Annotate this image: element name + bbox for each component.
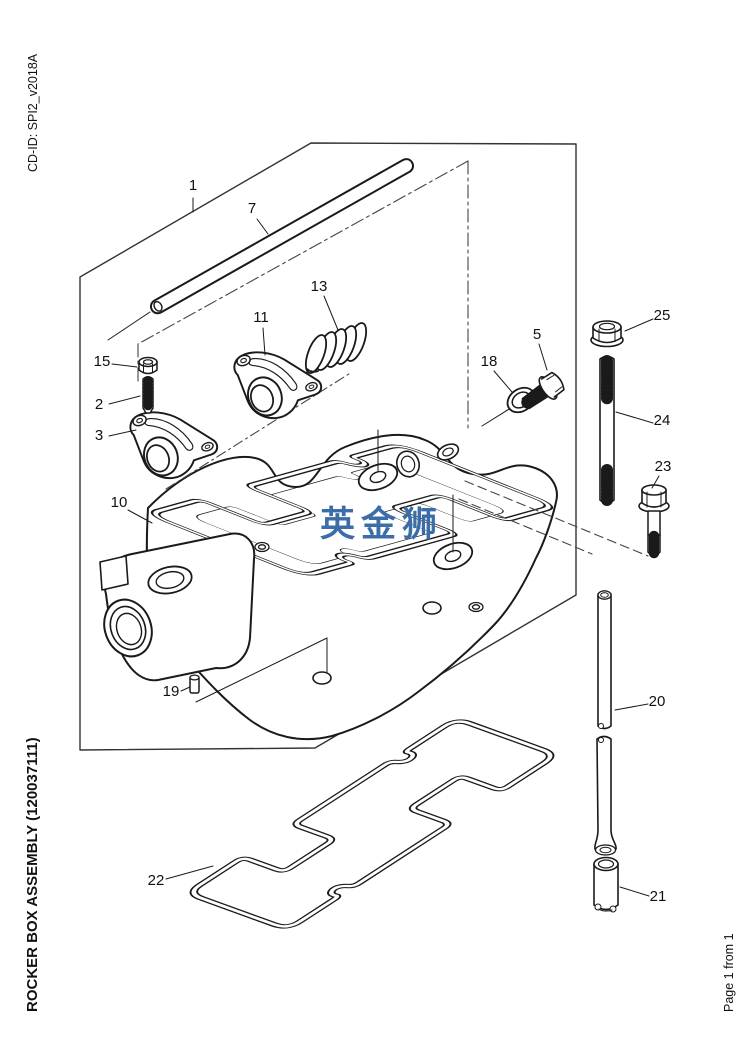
- callout-24: 24: [654, 412, 671, 429]
- watermark: 英金狮: [320, 504, 443, 544]
- page: CD-ID: SPI2_v2018A ROCKER BOX ASSEMBLY (…: [0, 0, 750, 1044]
- callout-13: 13: [311, 278, 328, 295]
- callout-25: 25: [654, 307, 671, 324]
- callout-10: 10: [111, 494, 128, 511]
- part-2-adjusting-screw: [143, 377, 153, 413]
- part-20-push-rod-tube: [595, 591, 616, 855]
- part-19-pin: [190, 675, 199, 693]
- part-13-spring: [302, 320, 371, 375]
- callout-5: 5: [533, 326, 541, 343]
- left-bearing-boss: [96, 534, 254, 681]
- callout-2: 2: [95, 396, 103, 413]
- callout-15: 15: [94, 353, 111, 370]
- callout-20: 20: [649, 693, 666, 710]
- part-15-lock-nut: [139, 358, 157, 374]
- callout-3: 3: [95, 427, 103, 444]
- callout-19: 19: [163, 683, 180, 700]
- callout-1: 1: [189, 177, 197, 194]
- part-25-flange-nut: [591, 321, 623, 347]
- part-21-tube-sleeve: [594, 858, 618, 913]
- part-23-flange-bolt: [639, 485, 669, 556]
- part-22-gasket: [187, 719, 556, 930]
- callout-11: 11: [253, 309, 269, 326]
- callout-22: 22: [148, 872, 165, 889]
- callout-23: 23: [655, 458, 672, 475]
- callout-21: 21: [650, 888, 667, 905]
- part-24-stud: [600, 357, 614, 504]
- diagram-canvas: 英金狮 1 7 13 11 15 2 3 10 19 22 18 5 25 24…: [0, 0, 750, 1044]
- callout-7: 7: [248, 200, 256, 217]
- callout-18: 18: [481, 353, 498, 370]
